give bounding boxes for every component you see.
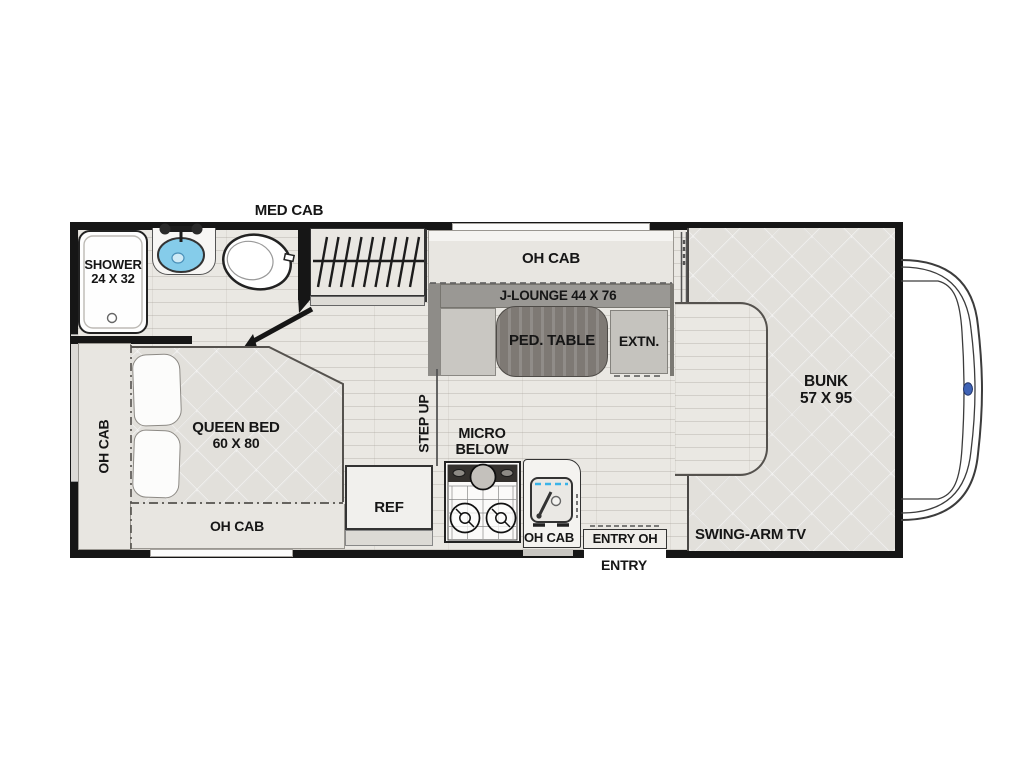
j-lounge-left-arm bbox=[428, 284, 440, 376]
wardrobe-wall-stub bbox=[298, 222, 310, 300]
label-ped-table: PED. TABLE bbox=[502, 333, 602, 349]
label-queen-bed: QUEEN BED 60 X 80 bbox=[166, 420, 306, 452]
label-med-cab: MED CAB bbox=[239, 203, 339, 219]
dinette-cabinet-window-strip bbox=[429, 231, 673, 241]
kitchen-sink-basin bbox=[530, 477, 573, 523]
j-lounge-seat bbox=[440, 308, 496, 376]
label-swing-arm-tv: SWING-ARM TV bbox=[695, 527, 825, 543]
stove-range bbox=[444, 461, 521, 543]
wardrobe-cabinet bbox=[310, 228, 425, 296]
wardrobe-shelf bbox=[310, 296, 425, 306]
window-left-bed bbox=[71, 334, 78, 482]
label-entry-oh: ENTRY OH bbox=[585, 532, 665, 546]
step-bump-below-kitchen bbox=[523, 549, 573, 556]
j-lounge-right-edge bbox=[670, 284, 674, 376]
truck-cab-outline bbox=[901, 260, 982, 520]
bed-pillow-top bbox=[132, 353, 182, 427]
rv-floorplan: MED CAB SHOWER 24 X 32 OH CAB J-LOUNGE 4… bbox=[0, 0, 1024, 768]
label-oh-cab-dinette: OH CAB bbox=[501, 251, 601, 267]
refrigerator bbox=[345, 465, 433, 530]
label-oh-cab-left: OH CAB bbox=[96, 405, 111, 489]
ford-logo bbox=[964, 383, 973, 395]
label-bunk: BUNK 57 X 95 bbox=[766, 374, 886, 407]
label-step-up: STEP UP bbox=[416, 382, 431, 466]
window-bottom-bed bbox=[150, 549, 293, 557]
label-oh-cab-bed: OH CAB bbox=[187, 519, 287, 534]
label-micro-below: MICRO BELOW bbox=[436, 427, 528, 458]
label-extn: EXTN. bbox=[609, 334, 669, 349]
label-ref: REF bbox=[349, 500, 429, 516]
label-shower: SHOWER 24 X 32 bbox=[80, 258, 146, 286]
refrigerator-base bbox=[345, 530, 433, 546]
label-oh-cab-kitchen: OH CAB bbox=[519, 531, 579, 545]
label-j-lounge: J-LOUNGE 44 X 76 bbox=[488, 289, 628, 304]
label-entry: ENTRY bbox=[584, 558, 664, 573]
bath-sink-counter bbox=[152, 228, 216, 275]
bunk-walkway-notch bbox=[675, 302, 768, 476]
